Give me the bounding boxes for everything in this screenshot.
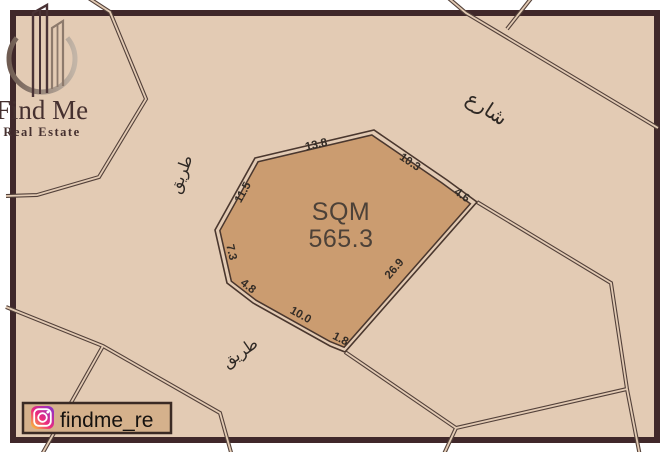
instagram-badge[interactable]: findme_re bbox=[23, 403, 171, 433]
brand-tagline: Real Estate bbox=[3, 125, 80, 139]
listing-image: SQM 565.3 13.8 10.3 4.6 26.9 1.8 10.0 4.… bbox=[0, 0, 668, 452]
instagram-handle[interactable]: findme_re bbox=[60, 409, 153, 432]
instagram-icon bbox=[31, 406, 54, 429]
plot-area-label: SQM bbox=[312, 198, 370, 226]
plot-area-value: 565.3 bbox=[308, 225, 373, 253]
parcel-map: SQM 565.3 13.8 10.3 4.6 26.9 1.8 10.0 4.… bbox=[0, 0, 668, 452]
brand-name: Find Me bbox=[0, 95, 88, 125]
